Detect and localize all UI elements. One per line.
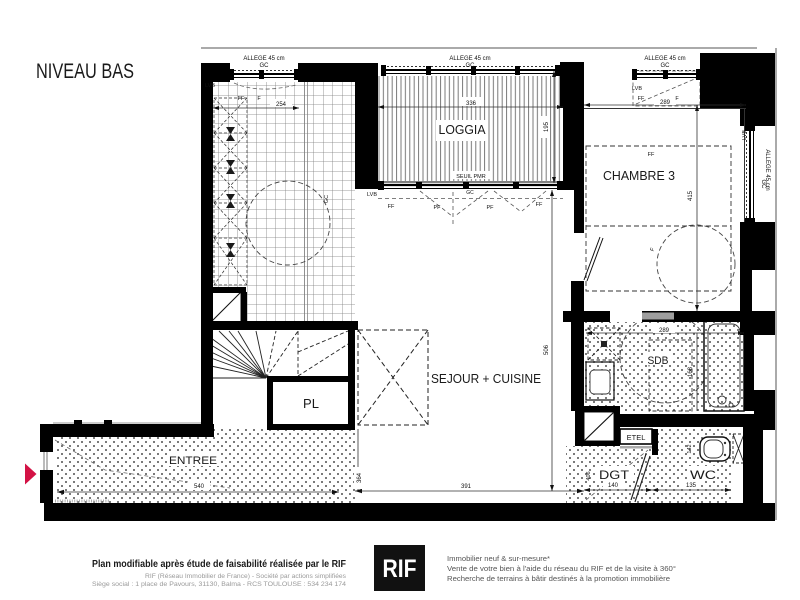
svg-text:Vente de votre bien à l'aide d: Vente de votre bien à l'aide du réseau d…	[447, 564, 676, 573]
svg-text:RIF: RIF	[383, 555, 417, 583]
svg-text:391: 391	[461, 484, 472, 490]
svg-text:GC: GC	[760, 180, 766, 190]
svg-text:289: 289	[660, 100, 671, 106]
svg-text:Plan modifiable après étude de: Plan modifiable après étude de faisabili…	[92, 558, 346, 570]
svg-text:DGT: DGT	[599, 470, 629, 482]
svg-text:GC: GC	[260, 63, 270, 69]
svg-text:SEUIL PMR: SEUIL PMR	[456, 174, 485, 180]
svg-text:Siège social : 1 place de Pavo: Siège social : 1 place de Pavours, 31130…	[92, 581, 346, 588]
svg-text:195: 195	[544, 121, 550, 132]
svg-text:GC: GC	[661, 63, 671, 69]
svg-text:364: 364	[357, 472, 363, 483]
svg-text:ALLEGE 45 cm: ALLEGE 45 cm	[449, 56, 490, 62]
svg-text:140: 140	[608, 483, 619, 489]
svg-text:142: 142	[687, 444, 693, 453]
svg-text:LOGGIA: LOGGIA	[439, 123, 487, 137]
svg-text:Immobilier neuf & sur-mesure*: Immobilier neuf & sur-mesure*	[447, 554, 550, 563]
svg-text:RIF (Réseau Immobilier de Fran: RIF (Réseau Immobilier de France) - Soci…	[145, 573, 347, 580]
svg-text:FF: FF	[536, 202, 543, 208]
svg-text:LVB: LVB	[367, 192, 377, 198]
svg-text:540: 540	[194, 484, 205, 490]
svg-text:LVB: LVB	[742, 130, 748, 140]
svg-text:PF: PF	[486, 205, 494, 211]
svg-text:LVB: LVB	[205, 83, 215, 89]
svg-text:FF: FF	[648, 152, 655, 158]
svg-text:PL: PL	[303, 396, 319, 411]
svg-text:135: 135	[686, 483, 697, 489]
svg-text:GC: GC	[324, 195, 330, 203]
svg-text:ENTREE: ENTREE	[169, 455, 217, 467]
svg-text:LVB: LVB	[632, 86, 642, 92]
svg-text:ALLEGE 45 cm: ALLEGE 45 cm	[644, 56, 685, 62]
svg-text:Recherche de terrains à bâtir: Recherche de terrains à bâtir destinés à…	[447, 574, 670, 583]
svg-text:ETEL: ETEL	[627, 433, 646, 442]
svg-text:FF: FF	[238, 96, 245, 102]
svg-text:GC: GC	[466, 63, 476, 69]
svg-text:GC: GC	[466, 190, 474, 196]
svg-text:ALLEGE 45 cm: ALLEGE 45 cm	[243, 56, 284, 62]
svg-text:254: 254	[276, 102, 287, 108]
svg-text:506: 506	[544, 344, 550, 355]
svg-text:SDB: SDB	[648, 355, 669, 367]
svg-text:FF: FF	[388, 204, 395, 210]
svg-text:406: 406	[586, 471, 592, 480]
svg-text:WC: WC	[690, 470, 716, 482]
svg-text:CHAMBRE 3: CHAMBRE 3	[603, 169, 675, 183]
svg-text:415: 415	[688, 190, 694, 201]
svg-text:336: 336	[466, 101, 477, 107]
svg-text:289: 289	[659, 328, 670, 334]
svg-text:168: 168	[688, 366, 694, 377]
svg-text:NIVEAU BAS: NIVEAU BAS	[36, 60, 134, 83]
svg-text:PF: PF	[433, 205, 441, 211]
svg-text:SEJOUR + CUISINE: SEJOUR + CUISINE	[431, 372, 541, 386]
svg-text:FF: FF	[638, 96, 645, 102]
